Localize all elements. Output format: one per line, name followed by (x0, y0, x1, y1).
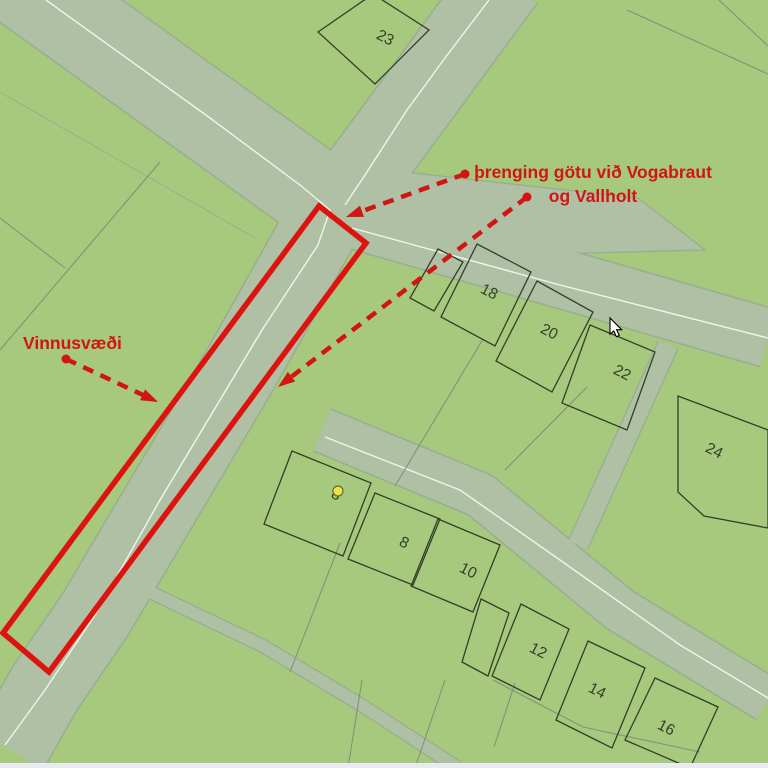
window-bottom-strip (0, 763, 768, 768)
address-point-marker (333, 486, 343, 496)
map-canvas[interactable]: 23182022248810121416þrenging götu við Vo… (0, 0, 768, 768)
map-viewport[interactable]: 23182022248810121416þrenging götu við Vo… (0, 0, 768, 768)
street-narrowing-note-line1: þrenging götu við Vogabraut (474, 162, 712, 182)
street-narrowing-note-line2: og Vallholt (549, 186, 638, 206)
work-area-label: Vinnusvæði (23, 333, 122, 353)
